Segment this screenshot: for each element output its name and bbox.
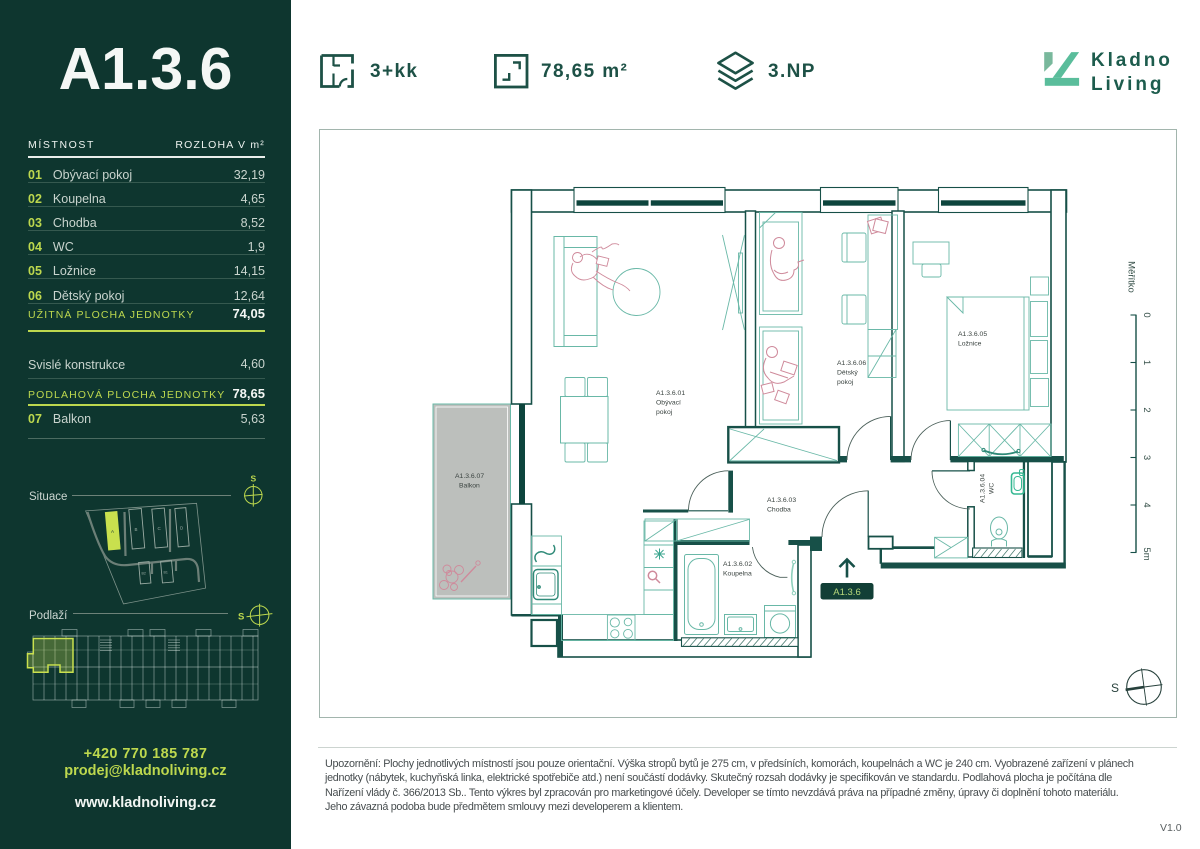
svg-text:B: B	[135, 527, 138, 532]
svg-text:Koupelna: Koupelna	[723, 571, 752, 578]
svg-text:S: S	[1111, 681, 1119, 695]
svg-text:pokoj: pokoj	[837, 379, 854, 386]
svg-text:5m: 5m	[1141, 547, 1152, 560]
svg-text:B1: B1	[164, 571, 168, 575]
svg-text:Obývací: Obývací	[656, 400, 681, 407]
svg-text:A1.3.6.05: A1.3.6.05	[958, 331, 987, 338]
svg-text:WC: WC	[989, 483, 996, 494]
svg-text:Měřítko: Měřítko	[1126, 261, 1137, 293]
svg-text:A1.3.6.02: A1.3.6.02	[723, 561, 752, 568]
svg-text:3: 3	[1141, 455, 1152, 460]
svg-text:Balkon: Balkon	[459, 483, 480, 490]
svg-text:C: C	[158, 526, 162, 531]
svg-text:A1.3.6.06: A1.3.6.06	[837, 360, 866, 367]
svg-text:A1.3.6.01: A1.3.6.01	[656, 390, 685, 397]
svg-text:A1.3.6.04: A1.3.6.04	[980, 474, 987, 503]
svg-text:1: 1	[1141, 360, 1152, 365]
svg-text:4: 4	[1141, 502, 1152, 507]
svg-text:pokoj: pokoj	[656, 409, 673, 416]
svg-text:A1.3.6: A1.3.6	[833, 587, 860, 598]
svg-text:A: A	[111, 529, 114, 534]
svg-text:A1.3.6.03: A1.3.6.03	[767, 497, 796, 504]
svg-text:0: 0	[1141, 312, 1152, 317]
svg-text:2: 2	[1141, 407, 1152, 412]
svg-text:Chodba: Chodba	[767, 507, 791, 514]
svg-text:D: D	[180, 526, 184, 531]
svg-text:B2: B2	[142, 572, 146, 576]
svg-text:Ložnice: Ložnice	[958, 341, 982, 348]
svg-text:S: S	[238, 612, 244, 623]
svg-text:A1.3.6.07: A1.3.6.07	[455, 473, 484, 480]
svg-text:S: S	[250, 474, 256, 484]
svg-text:Dětský: Dětský	[837, 370, 858, 377]
